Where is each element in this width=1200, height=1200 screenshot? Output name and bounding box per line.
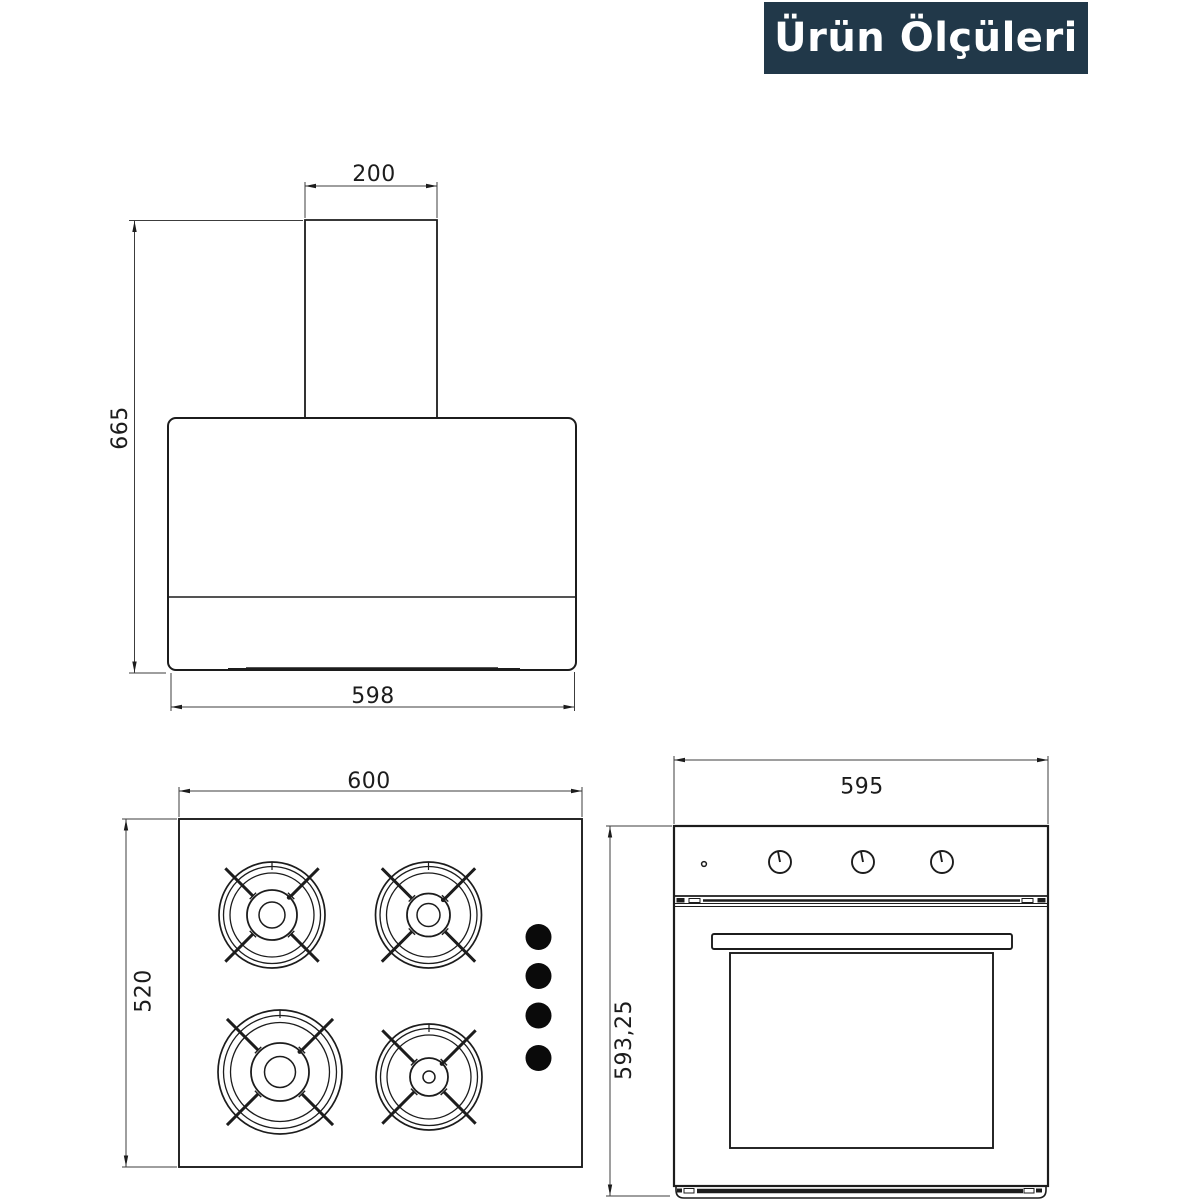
- dim-label-hood-height: 665: [108, 406, 133, 450]
- hob-knob: [526, 963, 552, 989]
- oven-drawing: [674, 826, 1048, 1198]
- knob-pointer: [940, 851, 942, 862]
- burner: [219, 862, 325, 968]
- oven-vent-mark: [689, 899, 700, 903]
- oven-foot-mark: [1024, 1189, 1034, 1194]
- cooktop-drawing: [179, 819, 582, 1167]
- dim-label-oven-width: 595: [840, 775, 884, 800]
- pan-support-bar: [382, 1092, 414, 1124]
- dim-label-hood-width: 598: [351, 684, 395, 709]
- cooktop-burners: [218, 862, 482, 1134]
- pan-support-bar: [382, 1030, 414, 1062]
- dim-label-cooktop-width: 600: [347, 769, 391, 794]
- oven-knob: [931, 851, 953, 873]
- oven-knob: [852, 851, 874, 873]
- dim-arrow: [426, 184, 437, 188]
- ignition-dot: [298, 1050, 302, 1054]
- burner: [376, 862, 482, 968]
- oven-vent-mark: [1038, 898, 1046, 903]
- dim-arrow: [132, 662, 136, 673]
- cooktop-dimensions: [122, 787, 582, 1167]
- hood-chimney: [305, 220, 437, 418]
- dim-arrow: [674, 758, 685, 762]
- dim-label-cooktop-depth: 520: [132, 969, 157, 1013]
- hood-dimensions: [129, 182, 575, 711]
- knob-pointer: [861, 851, 863, 862]
- cooktop-outline: [179, 819, 582, 1167]
- oven-foot-mark: [684, 1189, 694, 1194]
- burner: [218, 1010, 342, 1134]
- dim-arrow: [608, 1185, 612, 1196]
- dim-arrow: [179, 789, 190, 793]
- oven-indicator-light: [702, 862, 707, 867]
- dim-label-oven-height: 593,25: [612, 1000, 637, 1080]
- dim-arrow: [305, 184, 316, 188]
- hob-knob: [526, 924, 552, 950]
- dim-arrow: [1037, 758, 1048, 762]
- oven-dimensions: [606, 756, 1048, 1196]
- burner: [376, 1024, 482, 1130]
- dim-arrow: [608, 827, 612, 838]
- oven-door-handle: [712, 934, 1012, 949]
- dim-arrow: [571, 789, 582, 793]
- dim-arrow: [171, 705, 182, 709]
- oven-knob: [769, 851, 791, 873]
- ignition-dot: [440, 1062, 444, 1066]
- knob-pointer: [778, 851, 780, 862]
- dim-arrow: [132, 221, 136, 232]
- hood-body: [168, 418, 576, 670]
- pan-support-bar: [444, 1092, 476, 1124]
- ignition-dot: [287, 895, 291, 899]
- dim-arrow: [124, 1156, 128, 1167]
- oven-foot-mark: [677, 1189, 682, 1193]
- pan-support-bar: [444, 1030, 476, 1062]
- technical-drawing: 200 665 598 600 520: [0, 0, 1200, 1200]
- hob-knob: [526, 1045, 552, 1071]
- ignition-dot: [441, 898, 445, 902]
- dimension-arrowheads: [124, 184, 1048, 1196]
- oven-knobs: [769, 851, 953, 873]
- oven-door-window: [730, 953, 993, 1148]
- cooktop-knobs: [526, 924, 552, 1071]
- hob-knob: [526, 1003, 552, 1029]
- oven-vent-mark: [677, 898, 685, 903]
- hood-drawing: [168, 220, 576, 670]
- dim-label-hood-chimney-width: 200: [352, 162, 396, 187]
- product-dimensions-sheet: Ürün Ölçüleri 200 665 598: [0, 0, 1200, 1200]
- oven-vent-mark: [1022, 899, 1033, 903]
- dim-arrow: [564, 705, 575, 709]
- dim-arrow: [124, 820, 128, 831]
- oven-foot-mark: [1036, 1189, 1042, 1193]
